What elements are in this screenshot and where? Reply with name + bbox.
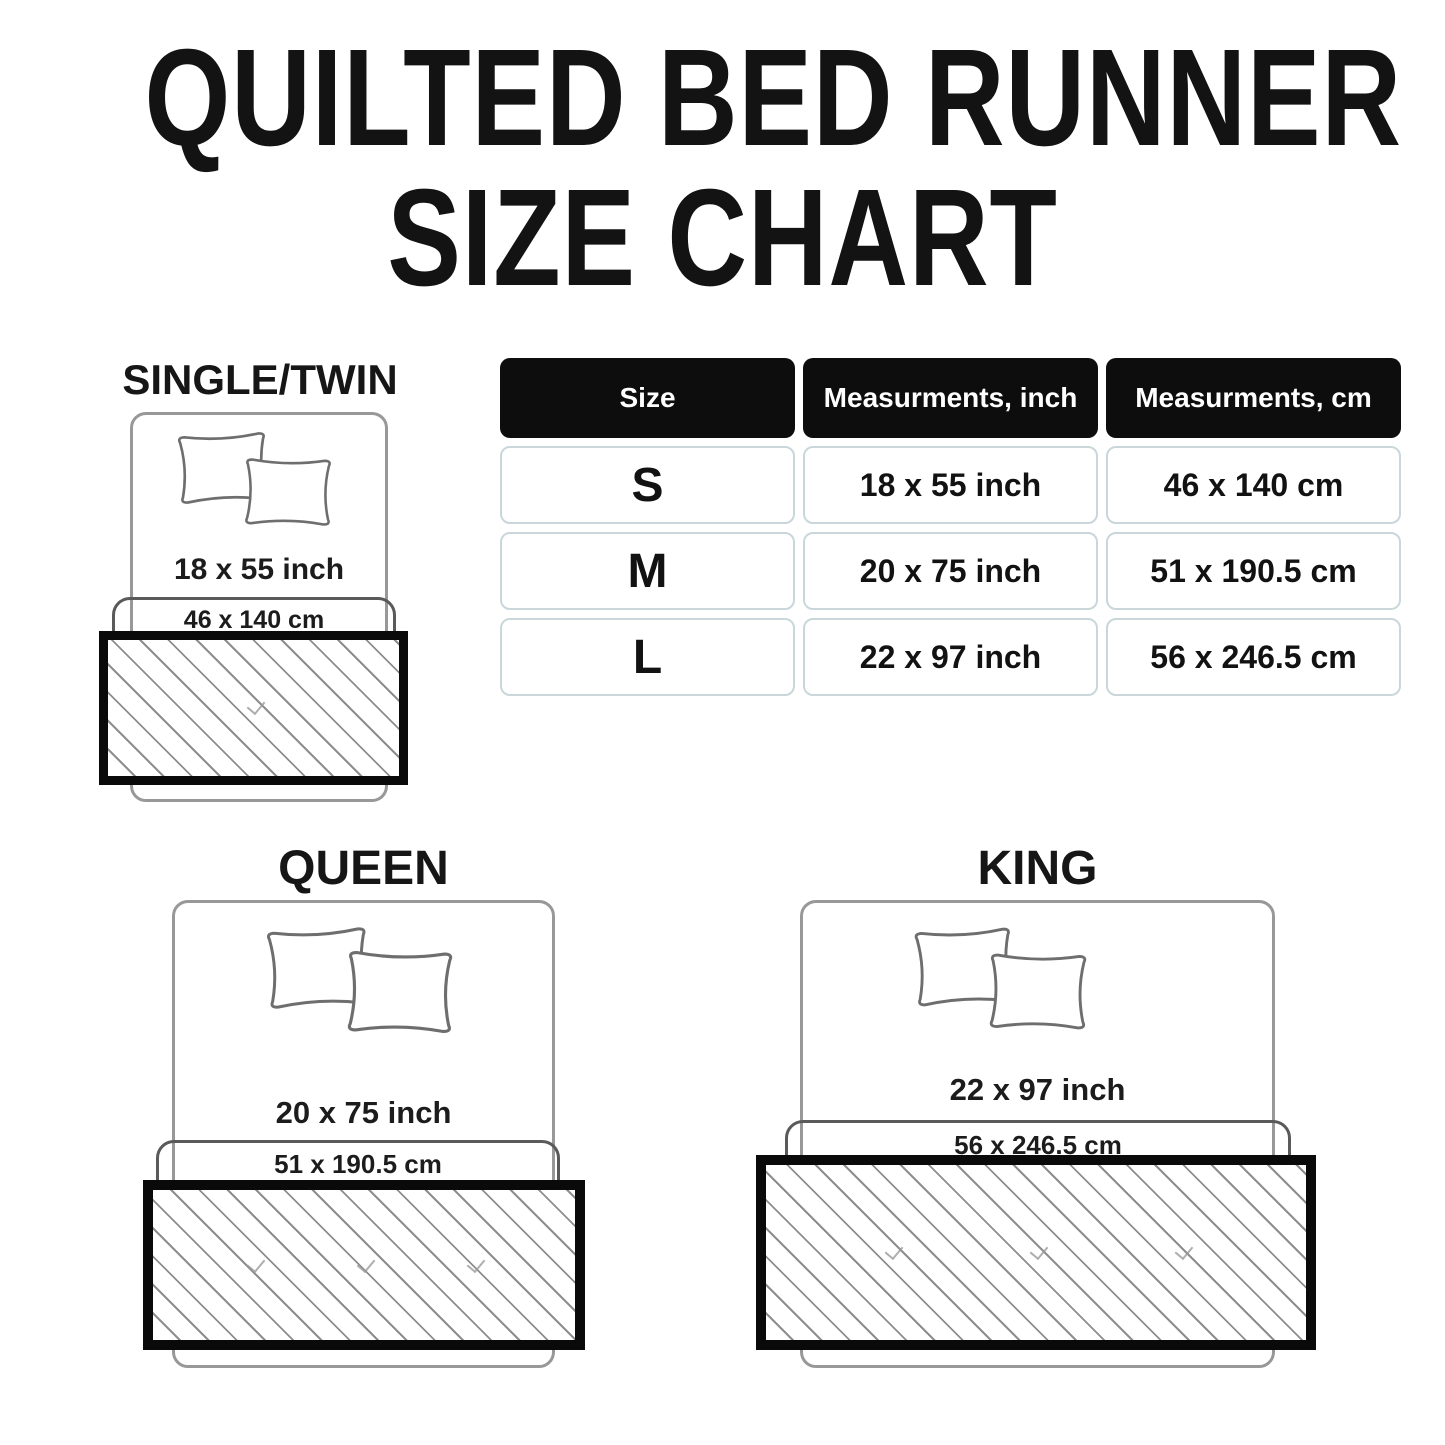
stitch-mark — [247, 696, 266, 715]
pillow-right — [979, 947, 1097, 1036]
queen-label: QUEEN — [172, 841, 555, 896]
row-m-cm-cell: 51 x 190.5 cm — [1106, 532, 1401, 610]
page-title-line1: QUILTED BED RUNNER — [145, 28, 1301, 168]
pillow-right — [234, 454, 341, 530]
row-s-inch-cell: 18 x 55 inch — [803, 446, 1098, 524]
pillow-right — [334, 946, 466, 1038]
queen-bed-runner-hatch — [143, 1180, 585, 1350]
stitch-mark — [467, 1254, 486, 1273]
table-header-cm: Measurments, cm — [1106, 358, 1401, 438]
queen-inch-dimension: 20 x 75 inch — [172, 1095, 555, 1131]
table-header-row: Size Measurments, inch Measurments, cm — [500, 358, 1401, 438]
row-m-inch-cell: 20 x 75 inch — [803, 532, 1098, 610]
row-l-cm-cell: 56 x 246.5 cm — [1106, 618, 1401, 696]
table-header-size: Size — [500, 358, 795, 438]
stitch-mark — [247, 1254, 266, 1273]
row-l-inch-cell: 22 x 97 inch — [803, 618, 1098, 696]
table-row: L 22 x 97 inch 56 x 246.5 cm — [500, 618, 1401, 696]
pillow-icon — [334, 946, 466, 1038]
queen-cm-dimension: 51 x 190.5 cm — [156, 1149, 560, 1180]
table-header-inch: Measurments, inch — [803, 358, 1098, 438]
single-twin-inch-dimension: 18 x 55 inch — [130, 553, 388, 587]
pillow-icon — [979, 947, 1097, 1036]
row-s-size-cell: S — [500, 446, 795, 524]
size-table: Size Measurments, inch Measurments, cm S… — [500, 358, 1401, 704]
row-l-size-cell: L — [500, 618, 795, 696]
table-row: M 20 x 75 inch 51 x 190.5 cm — [500, 532, 1401, 610]
pillow-icon — [234, 454, 341, 530]
single-twin-bed-runner-hatch — [99, 631, 408, 785]
page-title-line2: SIZE CHART — [145, 168, 1301, 308]
stitch-mark — [1175, 1241, 1194, 1260]
king-bed-runner-hatch — [756, 1155, 1316, 1350]
stitch-mark — [885, 1241, 904, 1260]
table-row: S 18 x 55 inch 46 x 140 cm — [500, 446, 1401, 524]
row-s-cm-cell: 46 x 140 cm — [1106, 446, 1401, 524]
row-m-size-cell: M — [500, 532, 795, 610]
stitch-mark — [1030, 1241, 1049, 1260]
size-chart-page: QUILTED BED RUNNER SIZE CHART SINGLE/TWI… — [0, 0, 1445, 1445]
stitch-mark — [357, 1254, 376, 1273]
king-inch-dimension: 22 x 97 inch — [800, 1072, 1275, 1108]
single-twin-label: SINGLE/TWIN — [95, 356, 425, 404]
king-label: KING — [800, 841, 1275, 896]
page-title: QUILTED BED RUNNER SIZE CHART — [145, 28, 1301, 308]
